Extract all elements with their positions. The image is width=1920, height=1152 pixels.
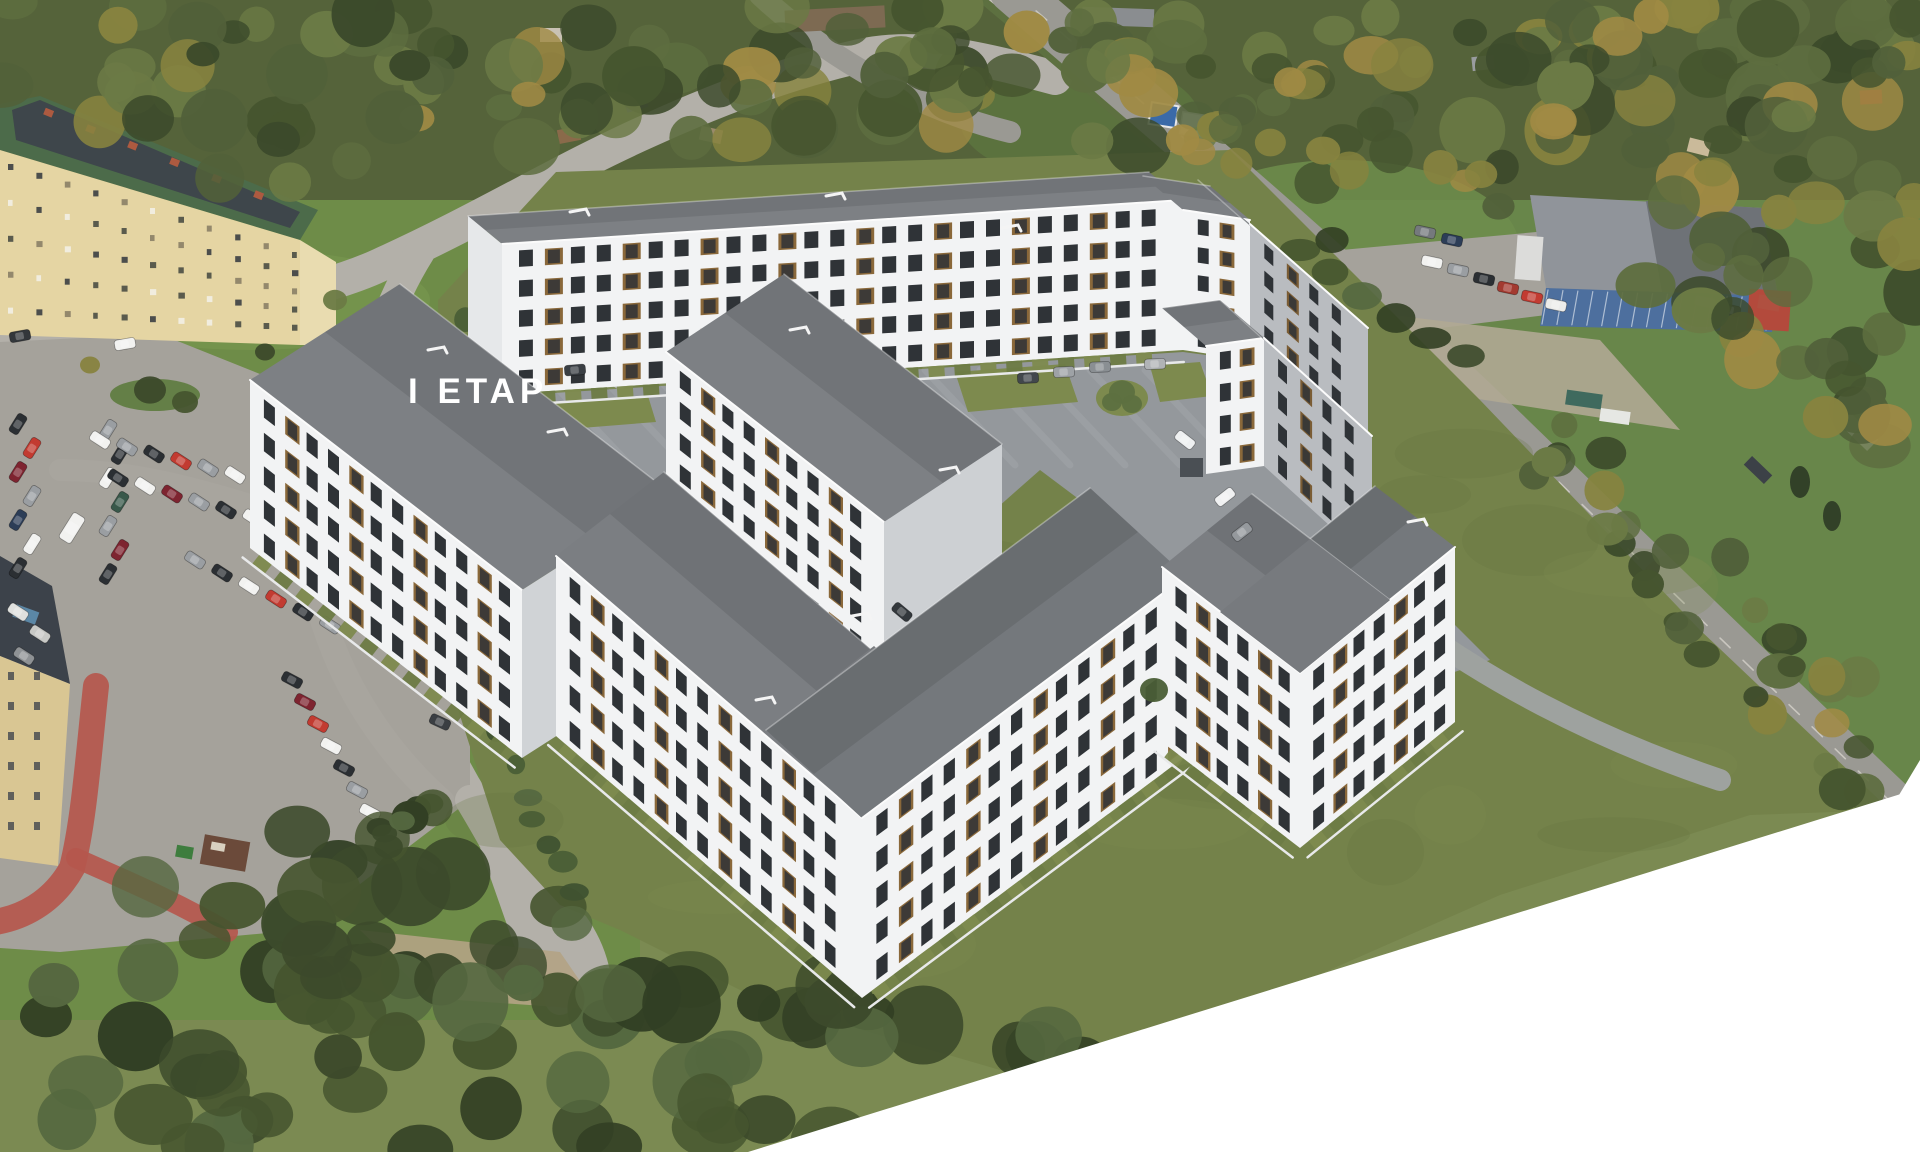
- aerial-render-scene: [0, 0, 1920, 1152]
- car: [1144, 358, 1166, 370]
- phase-label: I ETAP: [408, 372, 548, 412]
- car: [564, 364, 586, 376]
- shed: [1180, 458, 1203, 477]
- aerial-render-view: I ETAP: [0, 0, 1920, 1152]
- car: [1089, 361, 1111, 373]
- car: [1017, 372, 1039, 384]
- car: [1053, 366, 1075, 378]
